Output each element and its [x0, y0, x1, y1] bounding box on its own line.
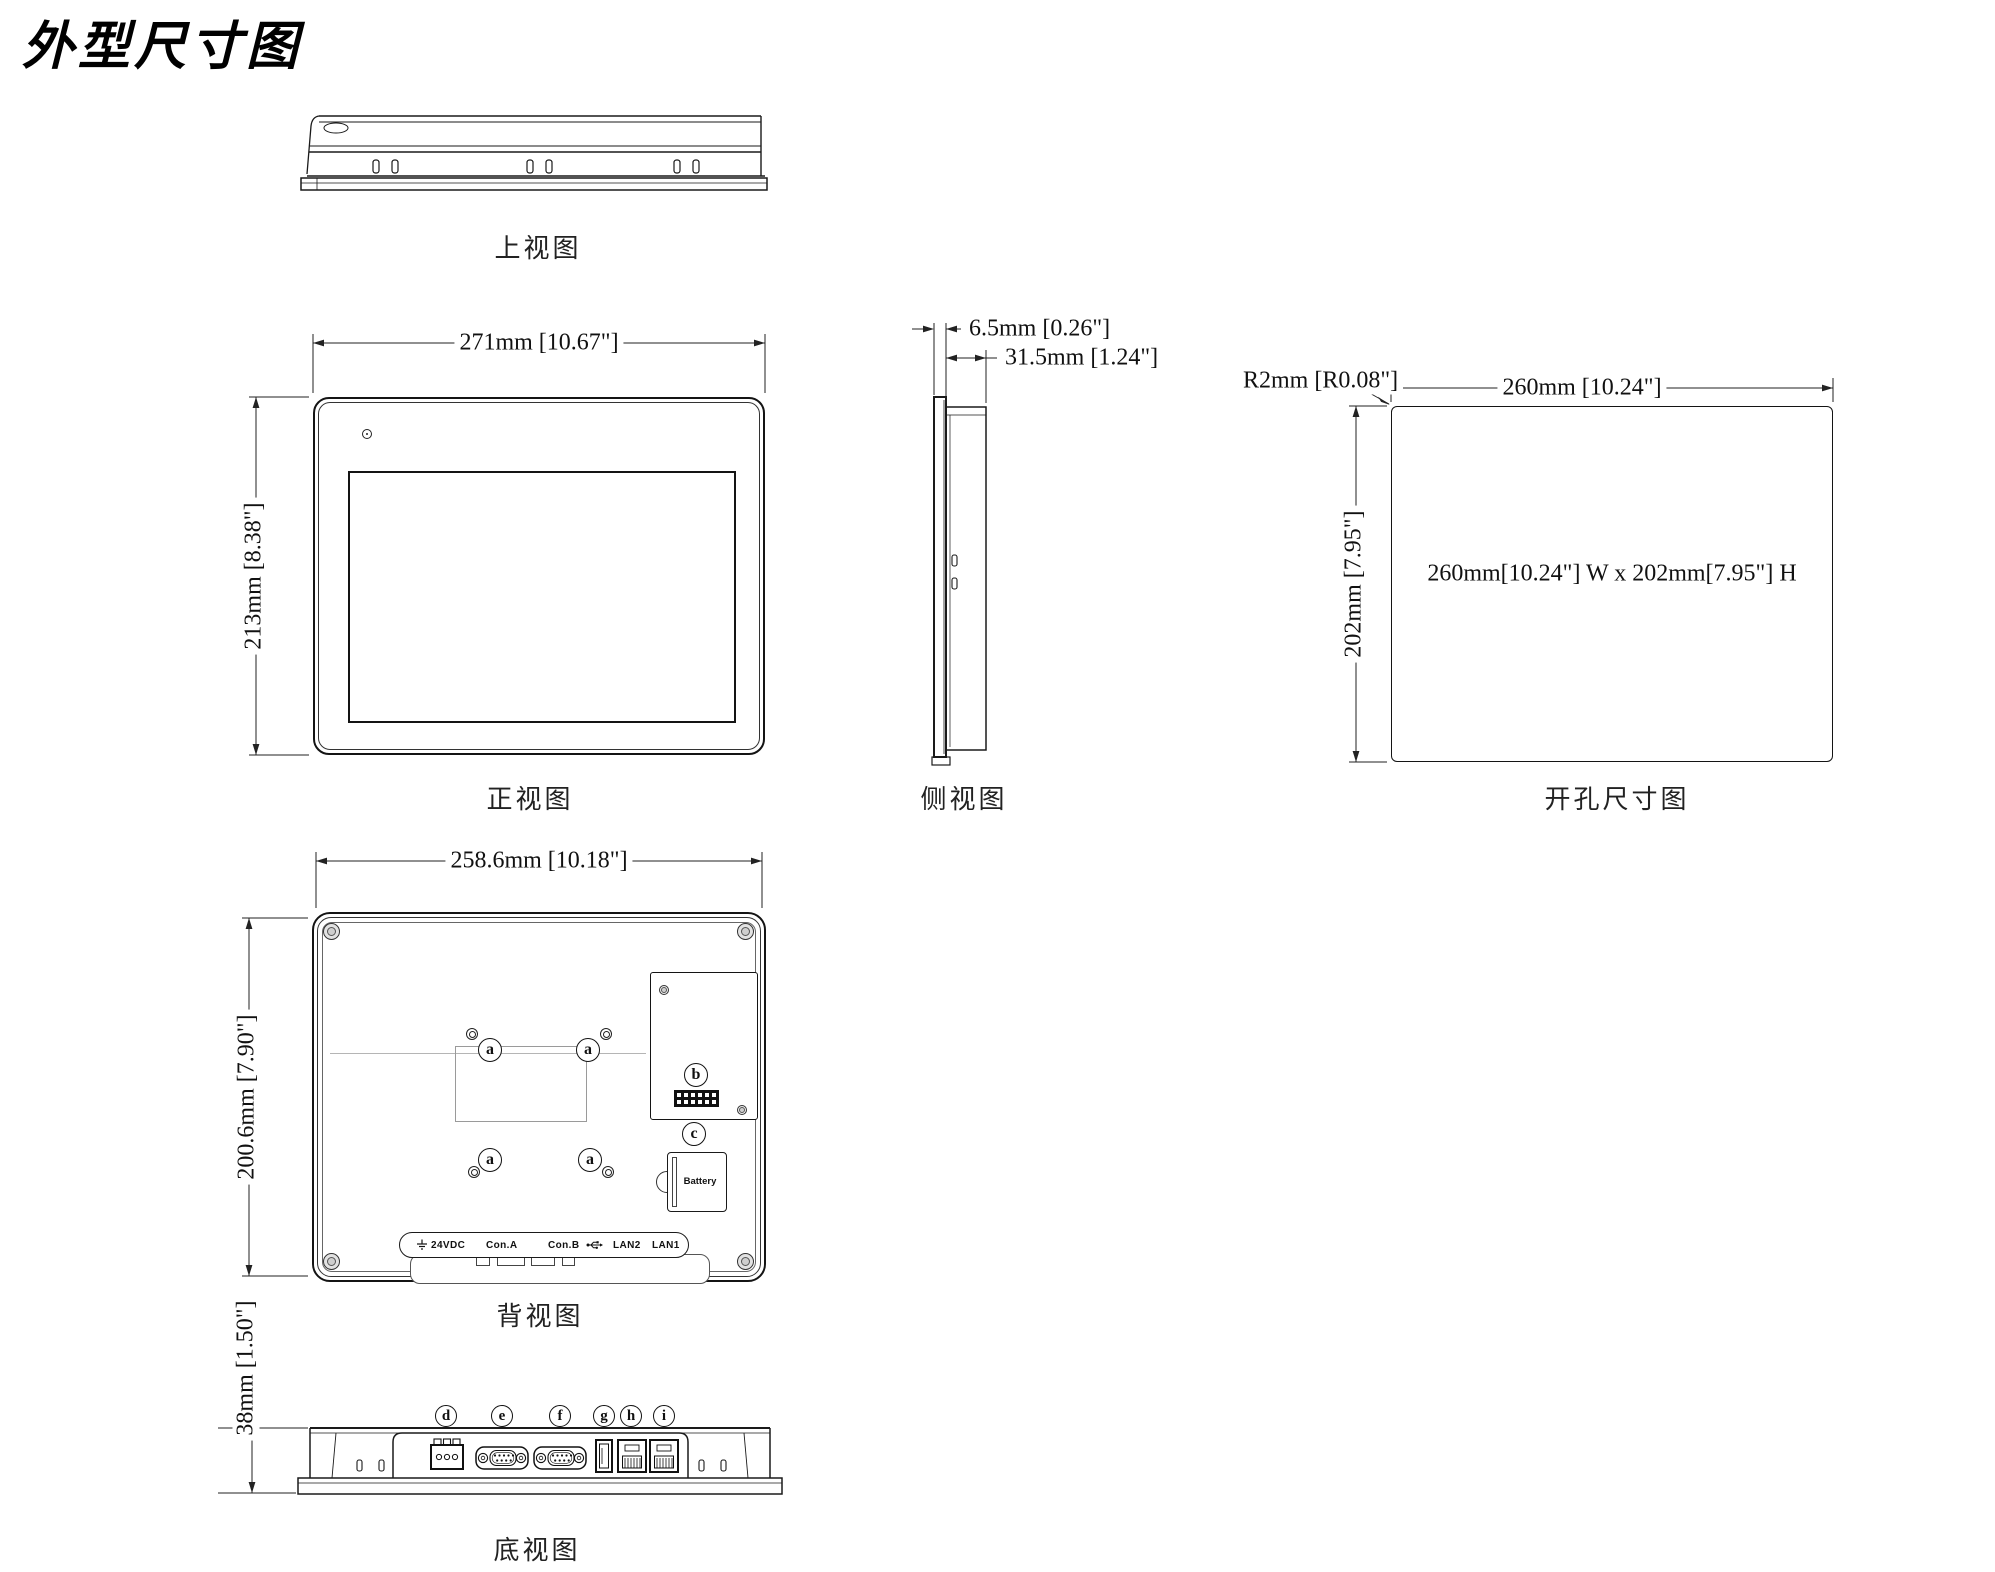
back-stub-3: [531, 1257, 555, 1266]
cutout-height-dimension: 202mm [7.95"]: [1341, 505, 1368, 662]
bottom-view-label: 底视图: [493, 1530, 580, 1567]
db9-connector-e: [476, 1447, 528, 1469]
vesa-hole-br: [602, 1166, 614, 1178]
front-view-label: 正视图: [486, 779, 573, 816]
front-height-dimension: 213mm [8.38"]: [241, 497, 268, 654]
back-stub-4: [562, 1257, 575, 1266]
back-corner-screw-tl: [323, 923, 340, 940]
callout-a-4: a: [578, 1148, 602, 1172]
back-bottom-tray: [410, 1254, 710, 1284]
db9-connector-f: [534, 1447, 586, 1469]
expansion-screw-2: [737, 1105, 747, 1115]
callout-a-3: a: [478, 1148, 502, 1172]
back-width-dimension: 258.6mm [10.18"]: [445, 848, 632, 875]
back-corner-screw-bl: [323, 1253, 340, 1270]
power-label: 24VDC: [431, 1240, 465, 1251]
page-title: 外型尺寸图: [22, 4, 302, 79]
callout-g: g: [593, 1405, 615, 1427]
usb-icon: [586, 1240, 604, 1250]
cutout-size-note: 260mm[10.24"] W x 202mm[7.95"] H: [1422, 561, 1801, 588]
back-height-dimension: 200.6mm [7.90"]: [234, 1009, 261, 1184]
back-view-label: 背视图: [496, 1296, 583, 1333]
top-view-label: 上视图: [494, 228, 581, 265]
back-center-recess: [455, 1046, 587, 1122]
callout-b: b: [684, 1063, 708, 1087]
callout-e: e: [491, 1405, 513, 1427]
rj45-port-lan2: [618, 1440, 646, 1472]
battery-label: Battery: [676, 1176, 724, 1187]
front-width-dimension: 271mm [10.67"]: [454, 330, 623, 357]
callout-a-1: a: [478, 1038, 502, 1062]
con-b-label: Con.B: [548, 1233, 579, 1257]
side-bezel-dimension: 6.5mm [0.26"]: [964, 316, 1115, 343]
callout-c: c: [682, 1122, 706, 1146]
bottom-height-dimension: 38mm [1.50"]: [233, 1295, 260, 1440]
rj45-port-lan1: [650, 1440, 678, 1472]
power-label-group: 24VDC: [416, 1233, 465, 1257]
cutout-width-dimension: 260mm [10.24"]: [1497, 375, 1666, 402]
side-view-label: 侧视图: [920, 779, 1007, 816]
status-led: [362, 429, 372, 439]
back-corner-screw-tr: [737, 923, 754, 940]
lan1-label: LAN1: [652, 1233, 680, 1257]
lan2-label: LAN2: [613, 1233, 641, 1257]
callout-f: f: [549, 1405, 571, 1427]
side-depth-dimension: 31.5mm [1.24"]: [1000, 345, 1163, 372]
callout-a-2: a: [576, 1038, 600, 1062]
vesa-hole-tr: [600, 1028, 612, 1040]
cutout-radius-dimension: R2mm [R0.08"]: [1238, 368, 1403, 395]
callout-d: d: [435, 1405, 457, 1427]
back-corner-screw-br: [737, 1253, 754, 1270]
dip-switch-block[interactable]: [674, 1090, 719, 1107]
back-stub-1: [476, 1257, 490, 1266]
bottom-connectors: [420, 1430, 690, 1480]
expansion-screw-1: [659, 985, 669, 995]
vesa-hole-bl: [468, 1166, 480, 1178]
power-terminal-connector: [431, 1439, 463, 1469]
side-view-drawing: [900, 320, 1080, 770]
earth-ground-icon: [416, 1239, 428, 1251]
usb-icon-wrap: [586, 1233, 604, 1257]
usb-port-connector: [596, 1440, 612, 1472]
port-label-strip: 24VDC Con.A Con.B LAN2 LAN1: [399, 1232, 689, 1258]
top-view-drawing: [295, 100, 775, 200]
callout-i: i: [653, 1405, 675, 1427]
dimension-drawing-canvas: 外型尺寸图: [0, 0, 1995, 1572]
con-a-label: Con.A: [486, 1233, 517, 1257]
cutout-view-label: 开孔尺寸图: [1544, 779, 1689, 816]
vesa-hole-tl: [466, 1028, 478, 1040]
callout-h: h: [620, 1405, 642, 1427]
front-view-screen: [348, 471, 736, 723]
back-stub-2: [497, 1257, 525, 1266]
